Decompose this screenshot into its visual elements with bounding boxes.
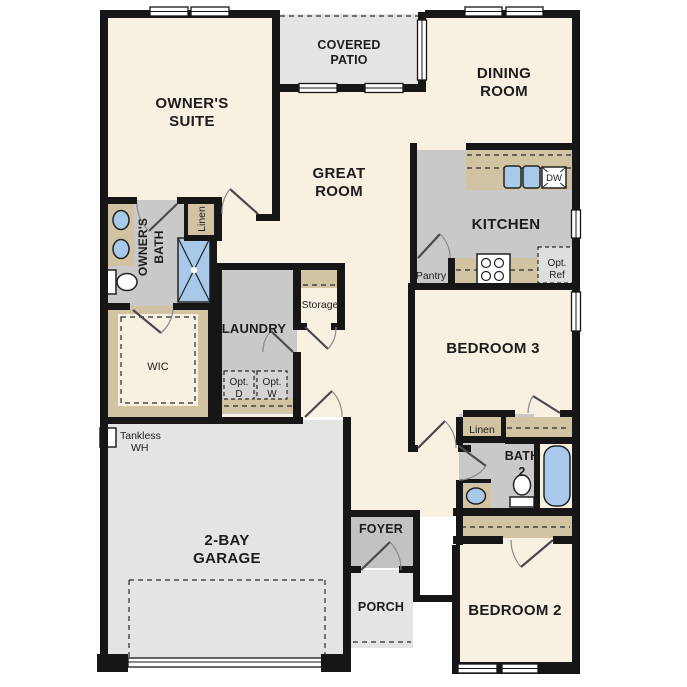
owners-toilet-bowl <box>117 274 137 291</box>
svg-text:ROOM: ROOM <box>480 83 528 100</box>
laundry-label: LAUNDRY <box>222 321 287 336</box>
wic-label: WIC <box>147 361 168 373</box>
tankless-wh-label: Tankless <box>120 430 161 442</box>
svg-text:PATIO: PATIO <box>330 53 367 67</box>
bedroom3-window <box>572 292 581 331</box>
svg-text:ROOM: ROOM <box>315 183 363 200</box>
storage-label: Storage <box>302 299 339 311</box>
pantry-label: Pantry <box>416 270 447 282</box>
bath2-sink <box>467 488 486 504</box>
dining-room-label: DINING <box>477 65 531 82</box>
vanity-sink-2 <box>113 240 129 259</box>
bedroom3-label: BEDROOM 3 <box>446 340 540 357</box>
covered-patio-label: COVERED <box>317 38 380 52</box>
opt-ref-label: Opt. <box>548 258 567 269</box>
foyer-label: FOYER <box>359 522 403 536</box>
bedroom3-closet-shelf <box>506 417 572 437</box>
svg-text:2: 2 <box>518 465 525 479</box>
patio-side-window <box>418 20 427 80</box>
svg-text:BATH: BATH <box>152 230 166 263</box>
kitchen-sink-right <box>523 166 540 188</box>
kitchen-label: KITCHEN <box>472 216 541 233</box>
owners-suite-label: OWNER'S <box>155 95 228 112</box>
owners-bath-label: OWNER'S <box>136 218 150 276</box>
svg-text:D: D <box>235 389 242 400</box>
bedroom2-label: BEDROOM 2 <box>468 602 562 619</box>
svg-text:WH: WH <box>131 442 149 454</box>
porch-label: PORCH <box>358 600 404 614</box>
svg-text:GARAGE: GARAGE <box>193 550 261 567</box>
garage-label: 2-BAY <box>204 532 249 549</box>
dishwasher-label: DW <box>546 173 562 184</box>
svg-text:SUITE: SUITE <box>169 113 215 130</box>
floor-plan-canvas: OWNER'S SUITE COVERED PATIO DINING ROOM … <box>0 0 687 687</box>
bath2-toilet-tank <box>510 497 534 507</box>
opt-washer-label: Opt. <box>263 377 282 388</box>
hall-linen-label: Linen <box>469 424 495 436</box>
bath2-tub <box>544 446 570 506</box>
kitchen-window <box>572 210 581 238</box>
shower-drain <box>191 267 197 273</box>
kitchen-sink-left <box>504 166 521 188</box>
great-room-label: GREAT <box>313 165 366 182</box>
vanity-sink-1 <box>113 211 129 230</box>
svg-text:Ref: Ref <box>549 270 565 281</box>
svg-text:W: W <box>267 389 277 400</box>
owners-linen-label: Linen <box>196 206 208 232</box>
opt-dryer-label: Opt. <box>230 377 249 388</box>
floor-plan: OWNER'S SUITE COVERED PATIO DINING ROOM … <box>0 0 687 687</box>
bath2-label: BATH <box>505 449 540 463</box>
kitchen-range <box>477 254 510 284</box>
